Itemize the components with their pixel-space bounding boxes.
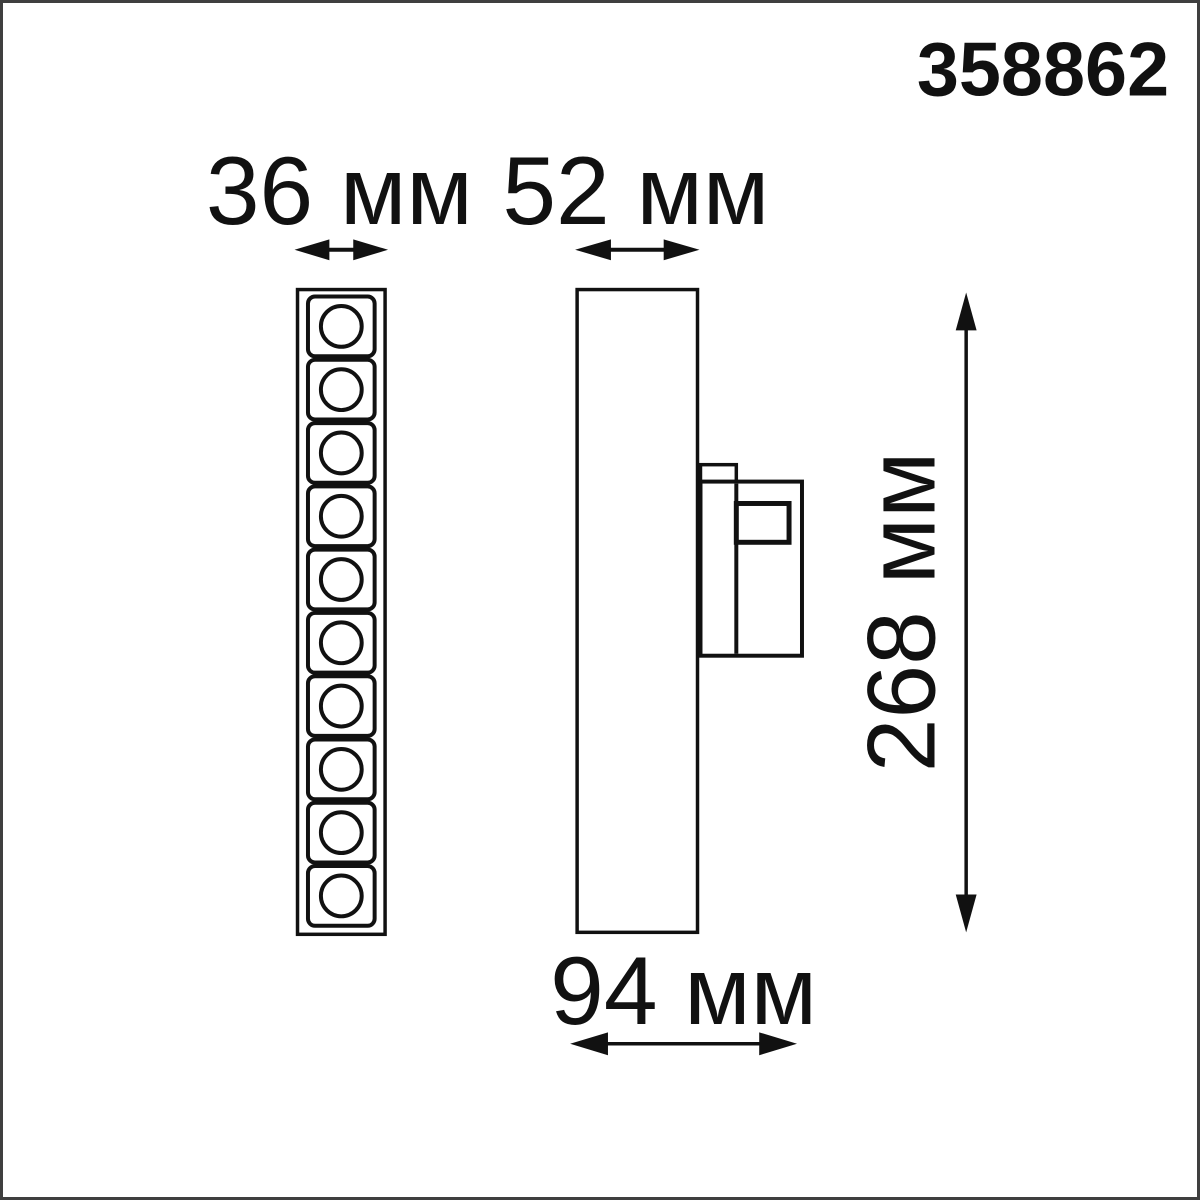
arrow-head-down — [956, 895, 977, 933]
dimension-depth: 94 мм — [550, 938, 817, 1055]
arrow-head-up — [956, 293, 977, 331]
dimension-front-width: 36 мм — [206, 138, 473, 260]
side-width-label: 52 мм — [502, 138, 769, 245]
side-view-body — [577, 290, 697, 933]
dimension-side-width: 52 мм — [502, 138, 769, 260]
technical-drawing: 358862 36 мм 52 мм — [3, 3, 1197, 1197]
height-label: 268 мм — [848, 452, 955, 773]
side-view — [577, 290, 802, 933]
front-view — [298, 290, 386, 935]
front-width-label: 36 мм — [206, 138, 473, 245]
product-code: 358862 — [917, 29, 1169, 113]
drawing-page: 358862 36 мм 52 мм — [0, 0, 1200, 1200]
dimension-height: 268 мм — [848, 293, 976, 933]
adapter-notch — [736, 503, 789, 542]
double-arrow-vertical-icon — [956, 293, 977, 933]
track-adapter — [700, 465, 801, 656]
depth-label: 94 мм — [550, 938, 817, 1045]
